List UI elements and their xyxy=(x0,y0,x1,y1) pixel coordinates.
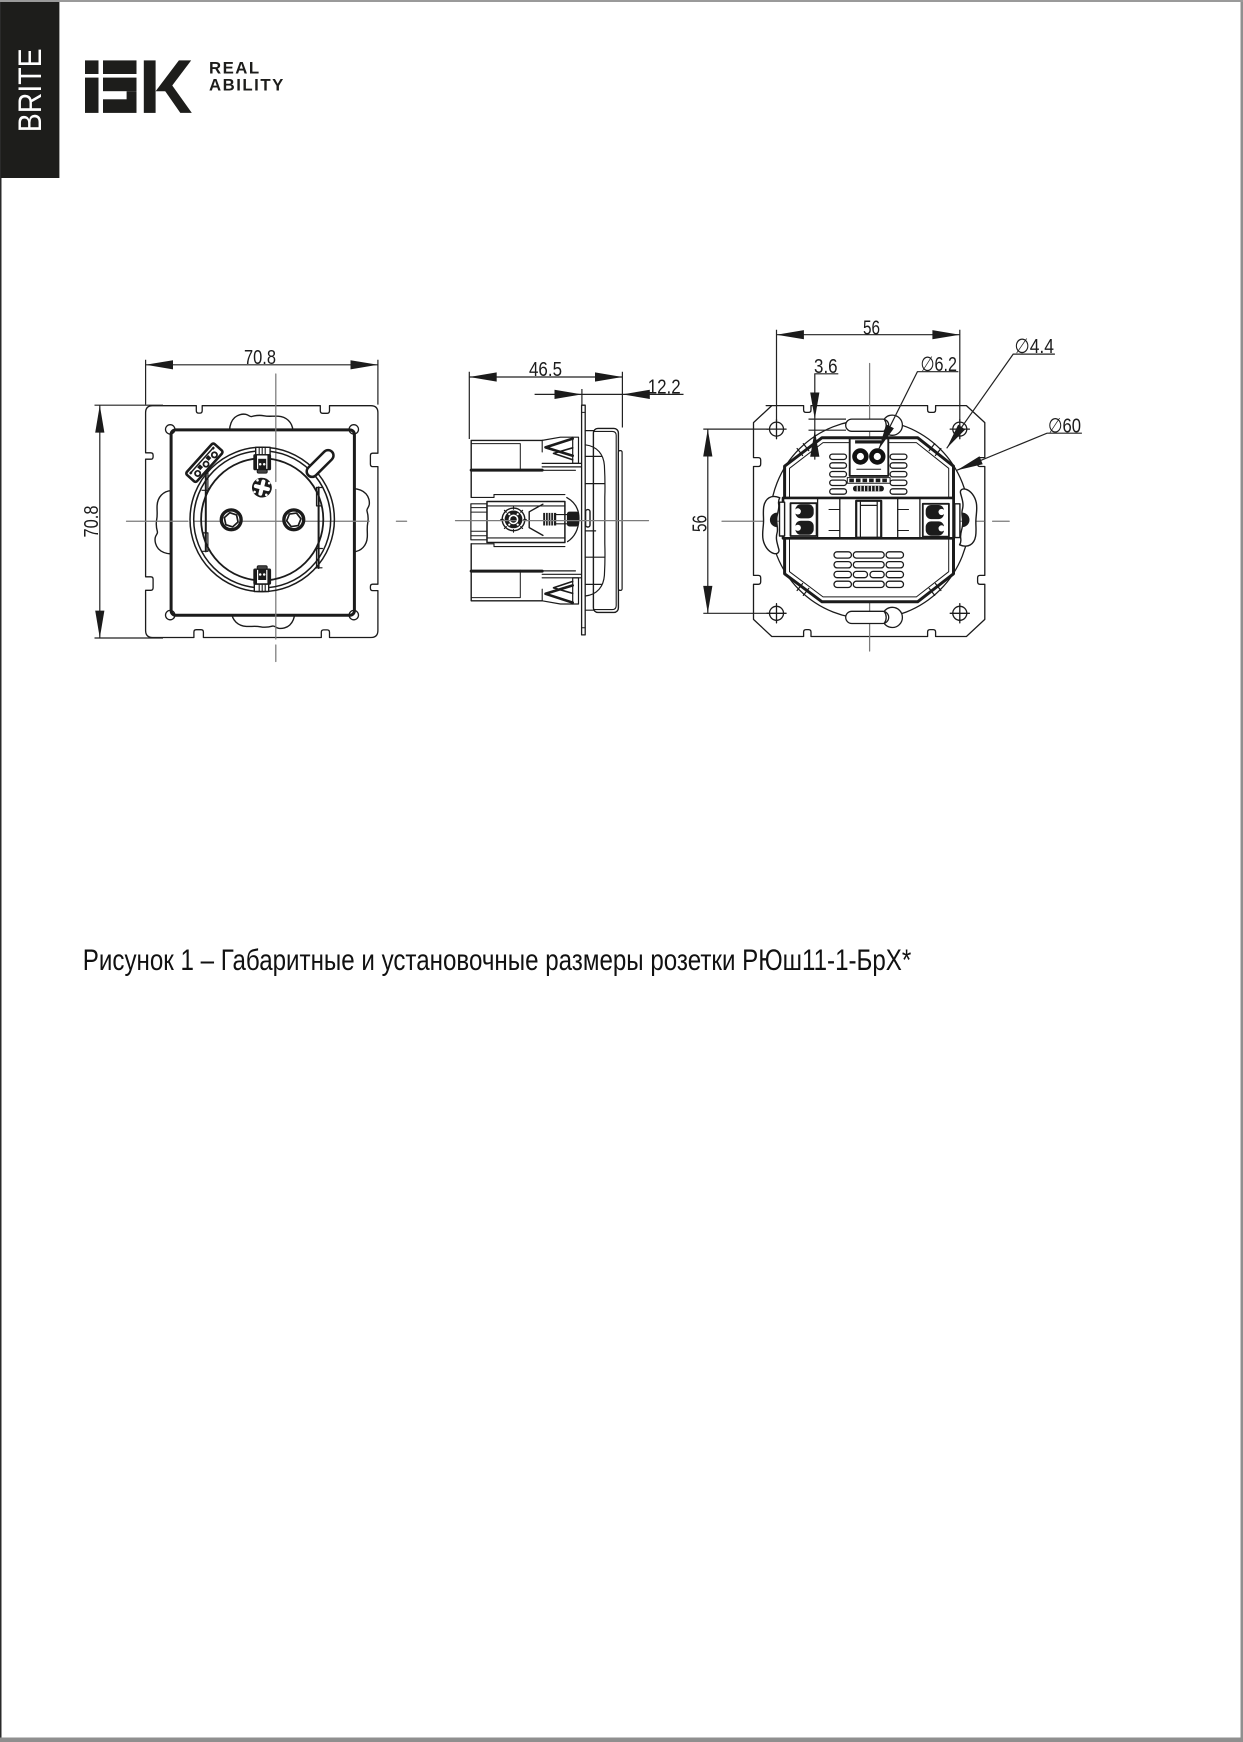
svg-text:46.5: 46.5 xyxy=(529,358,562,381)
svg-text:∅60: ∅60 xyxy=(1048,415,1081,438)
svg-text:56: 56 xyxy=(689,515,712,532)
svg-text:Рисунок 1 – Габаритные и устан: Рисунок 1 – Габаритные и установочные ра… xyxy=(83,944,912,977)
svg-text:∅4.4: ∅4.4 xyxy=(1015,335,1055,358)
svg-text:70.8: 70.8 xyxy=(244,346,276,369)
svg-text:12.2: 12.2 xyxy=(648,375,681,398)
svg-text:BRITE: BRITE xyxy=(12,48,48,132)
svg-text:∅6.2: ∅6.2 xyxy=(921,353,958,376)
svg-text:3.6: 3.6 xyxy=(814,355,838,378)
svg-text:REAL: REAL xyxy=(209,58,261,77)
svg-text:ABILITY: ABILITY xyxy=(209,76,285,95)
svg-text:70.8: 70.8 xyxy=(80,506,103,538)
svg-text:56: 56 xyxy=(863,316,880,339)
